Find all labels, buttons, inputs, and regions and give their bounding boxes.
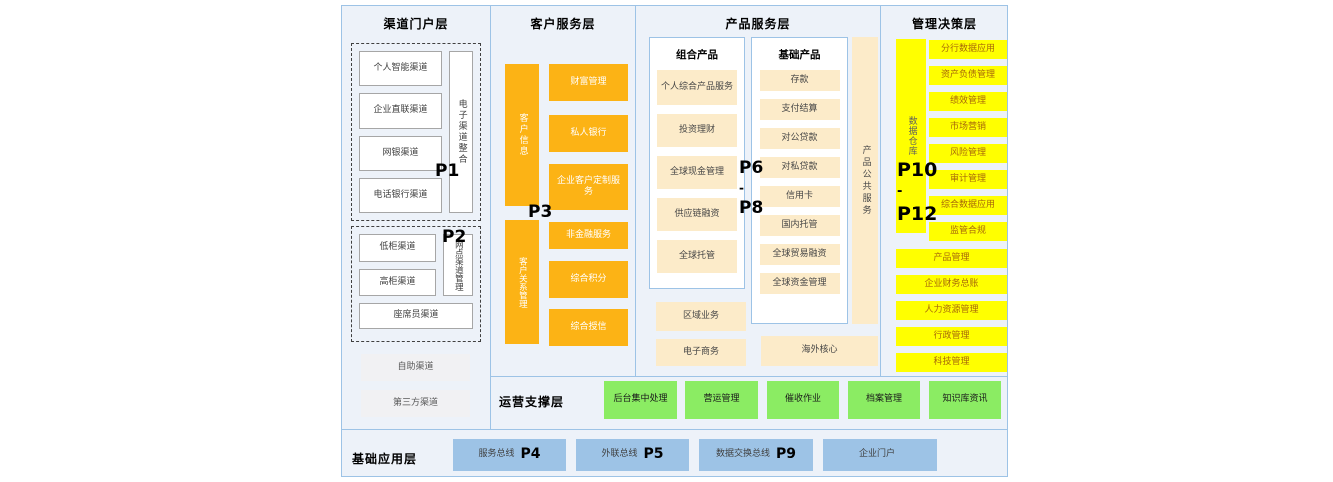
management-box: 人力资源管理 [896, 301, 1007, 320]
management-box: 审计管理 [929, 170, 1007, 189]
channel-box: 低柜渠道 [359, 234, 436, 262]
panel-title: 基础产品 [779, 47, 821, 62]
product-box: 全球现金管理 [657, 156, 737, 189]
operations-box: 档案管理 [848, 381, 920, 419]
management-box: 资产负债管理 [929, 66, 1007, 85]
product-box: 全球资金管理 [760, 273, 840, 294]
layer-operations-support: 运营支撑层 后台集中处理 营运管理 催收作业 档案管理 知识库资讯 [491, 376, 1008, 429]
channel-box: 企业直联渠道 [359, 93, 442, 128]
service-box: 财富管理 [549, 64, 628, 101]
layer-title: 渠道门户层 [342, 15, 490, 32]
channel-box: 第三方渠道 [361, 390, 470, 417]
product-box: 电子商务 [656, 339, 746, 366]
product-box: 全球托管 [657, 240, 737, 273]
product-box: 支付结算 [760, 99, 840, 120]
panel-title: 组合产品 [676, 47, 718, 62]
channel-box: 个人智能渠道 [359, 51, 442, 86]
p-marker-p4: P4 [521, 446, 541, 464]
service-box: 私人银行 [549, 115, 628, 152]
layer-management-decision: 管理决策层 数据仓库 分行数据应用 资产负债管理 绩效管理 市场营销 风险管理 … [881, 6, 1008, 376]
management-box: 监管合规 [929, 222, 1007, 241]
p-marker-p5: P5 [644, 446, 664, 464]
customer-crm-bar: 客户关系管理 [505, 220, 539, 344]
service-box: 企业客户定制服务 [549, 164, 628, 210]
bus-box: 企业门户 [823, 439, 937, 471]
p-marker-p6-p8: P6 - P8 [739, 158, 763, 218]
p-marker-p2: P2 [442, 228, 466, 247]
combo-products-panel: 组合产品 个人综合产品服务 投资理财 全球现金管理 供应链融资 全球托管 [649, 37, 745, 289]
channel-group-p1: 个人智能渠道 企业直联渠道 网银渠道 电话银行渠道 电子渠道整合 [351, 43, 481, 221]
service-box: 综合积分 [549, 261, 628, 298]
layer-foundation-application: 基础应用层 服务总线P4 外联总线P5 数据交换总线P9 企业门户 [342, 429, 1007, 477]
management-box: 企业财务总账 [896, 275, 1007, 294]
management-box: 风险管理 [929, 144, 1007, 163]
product-box: 区域业务 [656, 302, 746, 331]
product-box: 对私贷款 [760, 157, 840, 178]
layer-title: 运营支撑层 [499, 393, 564, 410]
product-box: 全球贸易融资 [760, 244, 840, 265]
layer-product-service: 产品服务层 组合产品 个人综合产品服务 投资理财 全球现金管理 供应链融资 全球… [636, 6, 881, 376]
layer-channel-portal: 渠道门户层 个人智能渠道 企业直联渠道 网银渠道 电话银行渠道 电子渠道整合 P… [342, 6, 491, 429]
management-box: 综合数据应用 [929, 196, 1007, 215]
operations-box: 催收作业 [767, 381, 839, 419]
channel-box: 高柜渠道 [359, 269, 436, 297]
bus-box: 外联总线P5 [576, 439, 689, 471]
channel-box: 电话银行渠道 [359, 178, 442, 213]
management-box: 分行数据应用 [929, 40, 1007, 59]
management-box: 绩效管理 [929, 92, 1007, 111]
product-box: 国内托管 [760, 215, 840, 236]
layer-title: 产品服务层 [636, 15, 880, 32]
product-box: 海外核心 [761, 336, 878, 366]
product-box: 个人综合产品服务 [657, 70, 737, 105]
management-box: 行政管理 [896, 327, 1007, 346]
operations-box: 营运管理 [685, 381, 758, 419]
p-marker-p1: P1 [435, 162, 459, 181]
layer-title: 管理决策层 [881, 15, 1008, 32]
channel-side-bar: 电子渠道整合 [449, 51, 473, 213]
product-box: 供应链融资 [657, 198, 737, 231]
layer-title: 基础应用层 [352, 450, 417, 467]
basic-products-panel: 基础产品 存款 支付结算 对公贷款 对私贷款 信用卡 国内托管 全球贸易融资 全… [751, 37, 848, 324]
architecture-diagram: 渠道门户层 个人智能渠道 企业直联渠道 网银渠道 电话银行渠道 电子渠道整合 P… [341, 5, 1008, 477]
p-marker-p9: P9 [776, 446, 796, 464]
management-box: 科技管理 [896, 353, 1007, 372]
layer-customer-service: 客户服务层 客户信息 P3 客户关系管理 财富管理 私人银行 企业客户定制服务 … [491, 6, 636, 376]
service-box: 非金融服务 [549, 222, 628, 249]
management-box: 市场营销 [929, 118, 1007, 137]
p-marker-p3: P3 [528, 203, 552, 222]
customer-info-bar: 客户信息 [505, 64, 539, 206]
layer-title: 客户服务层 [491, 15, 635, 32]
service-box: 综合授信 [549, 309, 628, 346]
operations-box: 后台集中处理 [604, 381, 677, 419]
channel-box: 座席员渠道 [359, 303, 473, 329]
management-box: 产品管理 [896, 249, 1007, 268]
bus-box: 服务总线P4 [453, 439, 566, 471]
channel-box: 自助渠道 [361, 354, 470, 381]
product-public-service-bar: 产品公共服务 [852, 37, 878, 324]
operations-box: 知识库资讯 [929, 381, 1001, 419]
product-box: 对公贷款 [760, 128, 840, 149]
product-box: 投资理财 [657, 114, 737, 147]
bus-box: 数据交换总线P9 [699, 439, 813, 471]
channel-box: 网银渠道 [359, 136, 442, 171]
product-box: 存款 [760, 70, 840, 91]
product-box: 信用卡 [760, 186, 840, 207]
p-marker-p10-p12: P10 - P12 [897, 159, 937, 225]
